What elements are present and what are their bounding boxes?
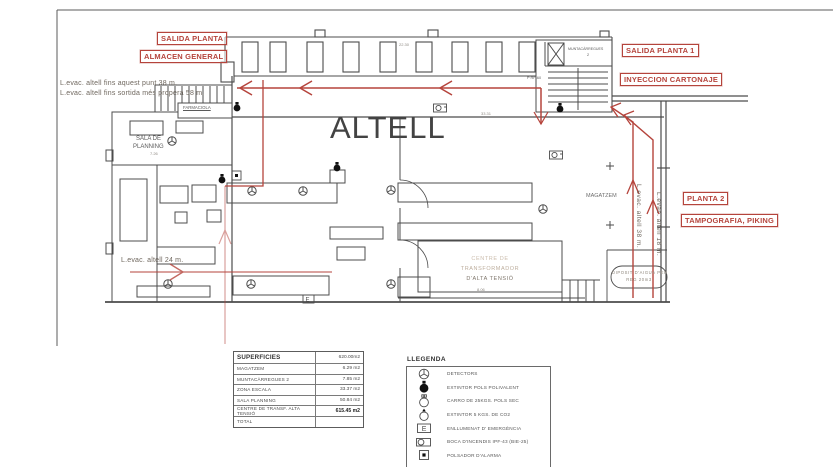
plan-title: ALTELL	[330, 110, 446, 146]
left-rooms	[106, 85, 232, 302]
row-label: ZONA ESCALA	[234, 387, 315, 392]
detector-icon	[387, 280, 395, 288]
table-row: MUNTACÀRREGUES 2 7.85 m2	[234, 374, 363, 385]
row-value: 615.45 m2	[315, 406, 363, 416]
extinguisher-icon	[334, 162, 341, 171]
emergency-light-icon: E	[415, 421, 433, 435]
row-value: 6.29 m2	[315, 364, 363, 374]
extinguisher-icon	[234, 102, 241, 111]
legend-label: BOCA D'INCENDIS IPF-43 (BIE-25)	[433, 439, 528, 444]
table-row: MAGATZEM 6.29 m2	[234, 363, 363, 374]
table-title: SUPERFICIES	[234, 354, 315, 361]
row-value	[315, 417, 363, 427]
detector-icon	[168, 137, 176, 145]
row-label: MAGATZEM	[234, 366, 315, 371]
co2-extinguisher-icon	[415, 408, 433, 422]
legend-label: POLSADOR D'ALARMA	[433, 453, 501, 458]
room-transformer-line1: CENTRE DE	[445, 256, 535, 262]
legend-item-polsador: POLSADOR D'ALARMA	[407, 449, 550, 463]
room-muntacarregues-2: 2	[587, 53, 589, 57]
alarm-button-icon	[415, 448, 433, 462]
emergency-light-icon: E	[303, 295, 314, 304]
detector-icon	[415, 367, 433, 381]
legend-item-carro-pols: CARRO DE 25KGS. POLS SEC	[407, 394, 550, 408]
legend-item-boca-incendis: BOCA D'INCENDIS IPF-43 (BIE-25)	[407, 435, 550, 449]
detector-icon	[164, 280, 172, 288]
table-row: TOTAL	[234, 416, 363, 427]
evac-24-label: L.evac. altell 24 m.	[121, 257, 183, 264]
legend-label: EXTINTOR 5 KGS. DE CO2	[433, 412, 510, 417]
extinguisher-icon	[219, 174, 226, 183]
table-row: SALA PLANNING 50.84 m2	[234, 395, 363, 406]
evac-note-line2: L.evac. altell fins sortida més propera …	[60, 90, 204, 97]
room-sala-planning-1: SALA DE	[136, 136, 161, 142]
hose-reel-icons	[434, 104, 563, 159]
svg-text:E: E	[306, 298, 310, 304]
superficies-table: SUPERFICIES 620.00m2 MAGATZEM 6.29 m2 MU…	[233, 351, 364, 428]
water-tank-label-2: REG 20m3	[612, 277, 666, 282]
row-value: 33.37 m2	[315, 385, 363, 395]
legend-item-extintor-pols: EXTINTOR POLS POLIVALENT	[407, 381, 550, 395]
row-label: MUNTACÀRREGUES 2	[234, 377, 315, 382]
detector-icon	[387, 186, 395, 194]
svg-text:E: E	[422, 426, 427, 433]
room-farmaciola: FARMACIOLA	[183, 105, 211, 110]
label-salida-planta-1: SALIDA PLANTA 1	[622, 44, 699, 57]
detector-icon	[247, 280, 255, 288]
extinguisher-icon	[415, 380, 433, 394]
powder-cart-icon	[415, 394, 433, 408]
row-value: 50.84 m2	[315, 396, 363, 406]
label-inyeccion-cartonaje: INYECCION CARTONAJE	[620, 73, 722, 86]
legend-label: DETECTORS	[433, 371, 478, 376]
evac-18-label: L.evac. altell 18 m.	[655, 192, 662, 256]
detector-icon	[539, 205, 547, 213]
label-almacen-general: ALMACEN GENERAL	[140, 50, 227, 63]
legend-item-detectors: DETECTORS	[407, 367, 550, 381]
hose-reel-icon	[415, 435, 433, 449]
hose-reel-icon	[550, 151, 563, 159]
evac-38-label: L.evac. altell 38 m.	[635, 184, 642, 248]
label-planta-2: PLANTA 2	[683, 192, 728, 205]
legend-title: LLEGENDA	[407, 356, 446, 363]
row-label: SALA PLANNING	[234, 398, 315, 403]
legend-item-extintor-co2: EXTINTOR 5 KGS. DE CO2	[407, 408, 550, 422]
dimension-8-06: 8.06	[477, 287, 485, 292]
row-label: TOTAL	[234, 419, 315, 424]
top-wall-and-racks	[221, 30, 612, 112]
dimension-22-30: 22.30	[399, 42, 409, 47]
table-title-value: 620.00m2	[315, 352, 363, 363]
legend-box: DETECTORS EXTINTOR POLS POLIVALENT CARRO…	[406, 366, 551, 467]
room-sala-planning-2: PLANNING	[133, 144, 164, 150]
door-rf60-label: P RF-60	[527, 76, 541, 80]
table-header-row: SUPERFICIES 620.00m2	[234, 352, 363, 363]
extinguisher-icon	[557, 103, 564, 112]
room-muntacarregues-1: MUNTACÀRREGUES	[568, 47, 603, 51]
room-transformer-line3: D'ALTA TENSIÓ	[445, 276, 535, 282]
label-tampografia-piking: TAMPOGRAFIA, PIKING	[681, 214, 778, 227]
detector-icon	[299, 187, 307, 195]
dimension-7-26: 7.26	[150, 151, 158, 156]
row-label: CENTRE DE TRANSF. ALTA TENSIÓ	[234, 406, 315, 416]
water-tank-label-1: DIPOSIT D'AIGUA PER	[612, 270, 666, 275]
legend-item-enllumenat: E ENLLUMENAT D' EMERGÈNCIA	[407, 421, 550, 435]
legend-label: ENLLUMENAT D' EMERGÈNCIA	[433, 426, 521, 431]
evac-note-line1: L.evac. altell fins aquest punt 38 m.	[60, 80, 177, 87]
legend-label: CARRO DE 25KGS. POLS SEC	[433, 398, 519, 403]
label-salida-planta: SALIDA PLANTA	[157, 32, 227, 45]
legend-label: EXTINTOR POLS POLIVALENT	[433, 385, 519, 390]
table-row: CENTRE DE TRANSF. ALTA TENSIÓ 615.45 m2	[234, 405, 363, 416]
water-tank-room	[607, 250, 667, 302]
table-row: ZONA ESCALA 33.37 m2	[234, 384, 363, 395]
row-value: 7.85 m2	[315, 375, 363, 385]
room-magatzem: MAGATZEM	[586, 193, 617, 199]
evacuation-floorplan-sheet: E	[0, 0, 835, 467]
dimension-33-31: 33.31	[481, 111, 491, 116]
detector-icon	[248, 187, 256, 195]
room-transformer-line2: TRANSFORMADOR	[445, 266, 535, 272]
alarm-button-icon	[232, 171, 241, 180]
